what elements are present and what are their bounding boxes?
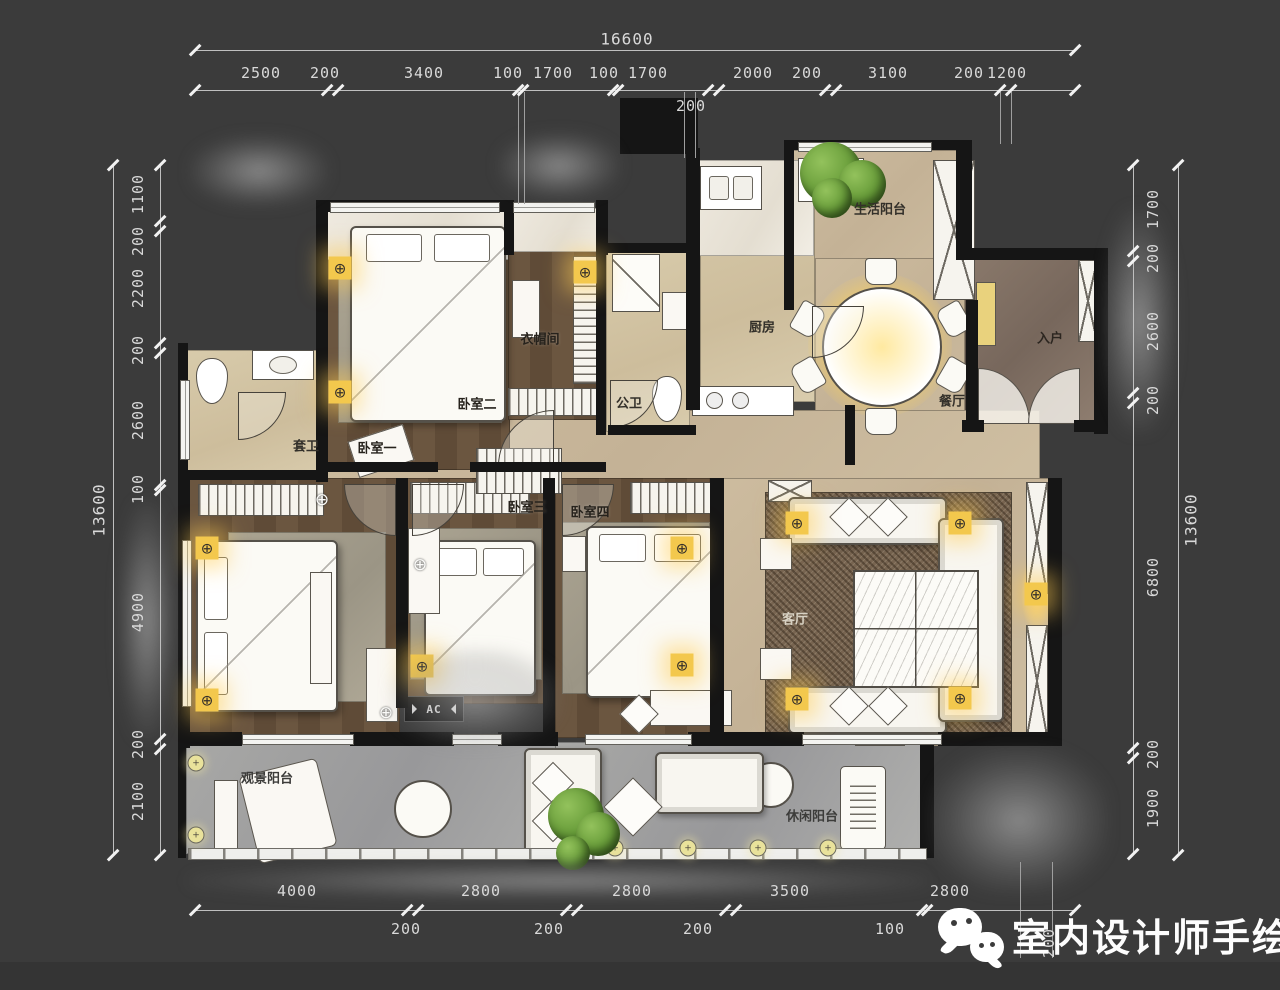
dining-chair <box>865 408 897 435</box>
wall-segment <box>966 300 978 428</box>
light-shadow <box>190 136 328 206</box>
label-entry: 入户 <box>1037 328 1063 347</box>
dim: 1700 <box>1144 189 1162 229</box>
dim-right-total: 13600 <box>1182 493 1201 546</box>
dim: 1700 <box>628 64 668 82</box>
x-cabinet <box>1026 625 1048 737</box>
wall-segment <box>608 425 696 435</box>
ceiling-light-icon: ⊕ <box>1025 583 1048 606</box>
wall-segment <box>686 148 700 410</box>
wall-segment <box>1094 252 1108 434</box>
dim: 100 <box>875 920 905 938</box>
ceiling-light-icon: ⊕ <box>411 655 434 678</box>
wall-segment <box>316 462 438 472</box>
ac-platform-box: AC <box>404 696 464 722</box>
floor-light-icon: + <box>750 840 767 857</box>
wall-segment <box>712 732 804 746</box>
bedroom3-bed <box>424 540 536 696</box>
wall-segment <box>596 250 606 435</box>
wall-segment <box>784 140 794 310</box>
window <box>330 202 500 213</box>
wall-segment <box>178 742 186 858</box>
balcony-planter <box>214 780 238 850</box>
dim: 2100 <box>129 781 147 821</box>
bedroom4-wardrobe <box>630 482 718 514</box>
extension-line <box>1000 92 1001 144</box>
dim: 200 <box>1144 739 1162 769</box>
light-shadow <box>930 748 1108 893</box>
ceiling-light-icon: ⊕ <box>949 687 972 710</box>
bedroom4-nightstand <box>562 536 586 572</box>
living-sofa-bottom <box>788 686 947 734</box>
plant-icon <box>812 178 852 218</box>
treadmill <box>840 766 886 850</box>
dim: 2200 <box>129 268 147 308</box>
label-kitchen: 厨房 <box>749 317 775 336</box>
dim: 200 <box>391 920 421 938</box>
wall-segment <box>350 732 398 746</box>
extension-line <box>518 92 519 204</box>
dim: 2000 <box>733 64 773 82</box>
ceiling-light-icon: ⊕ <box>329 381 352 404</box>
balcony-round-table <box>394 780 452 838</box>
floor-light-icon: + <box>188 755 205 772</box>
wechat-icon <box>938 900 1004 968</box>
wall-segment <box>962 248 1108 260</box>
label-bedroom1: 卧室一 <box>357 438 396 457</box>
label-leisure-balcony: 休闲阳台 <box>786 806 838 825</box>
wall-segment <box>920 742 934 858</box>
dim: 2800 <box>612 882 652 900</box>
dim: 4000 <box>277 882 317 900</box>
window <box>585 734 692 745</box>
dim: 200 <box>676 97 706 115</box>
dim: 3500 <box>770 882 810 900</box>
extension-line <box>1011 92 1012 144</box>
ceiling-light-icon: ⊕ <box>786 512 809 535</box>
stove-burner-icon <box>732 392 749 409</box>
label-dining: 餐厅 <box>939 391 965 410</box>
bedroom4-bed <box>586 526 714 698</box>
kitchen-sink <box>700 166 762 210</box>
dim: 200 <box>954 64 984 82</box>
plant-icon <box>556 836 590 870</box>
watermark-text: 室内设计师手绘 <box>1012 907 1280 962</box>
shower-stall <box>612 254 660 312</box>
dim: 200 <box>534 920 564 938</box>
bedroom1-foot-bench <box>310 572 332 684</box>
bath-vanity <box>662 292 688 330</box>
ceiling-light-icon: ⊕ <box>671 537 694 560</box>
cloakroom-rack <box>508 388 600 416</box>
ceiling-light-icon: ⊕ <box>329 257 352 280</box>
window <box>802 734 942 745</box>
wall-segment <box>596 243 700 253</box>
dim-line-left <box>160 165 161 855</box>
dim: 200 <box>310 64 340 82</box>
wall-segment <box>710 478 724 746</box>
dim-top-total: 16600 <box>600 30 653 49</box>
floor-light-icon: + <box>680 840 697 857</box>
dim: 2800 <box>461 882 501 900</box>
living-coffee-table <box>853 570 979 688</box>
downlight-icon: ⊕ <box>315 490 329 510</box>
wall-segment <box>1048 478 1062 746</box>
dim: 1700 <box>533 64 573 82</box>
ceiling-light-icon: ⊕ <box>574 261 597 284</box>
dim: 100 <box>589 64 619 82</box>
ceiling-light-icon: ⊕ <box>196 689 219 712</box>
living-side-table <box>760 538 792 570</box>
label-bedroom3: 卧室三 <box>507 497 546 516</box>
window <box>182 540 192 707</box>
wall-segment <box>184 732 242 746</box>
ceiling-light-icon: ⊕ <box>671 654 694 677</box>
ac-label: AC <box>426 703 441 716</box>
dim: 1200 <box>987 64 1027 82</box>
label-bedroom4: 卧室四 <box>570 502 609 521</box>
living-sofa-top <box>788 497 947 545</box>
dim: 2600 <box>129 400 147 440</box>
dim-line-right <box>1133 165 1134 855</box>
floor-light-icon: + <box>820 840 837 857</box>
dim: 6800 <box>1144 557 1162 597</box>
dim: 200 <box>1144 243 1162 273</box>
window <box>180 380 190 460</box>
label-ensuite-bath: 套卫 <box>293 436 319 455</box>
dim: 3400 <box>404 64 444 82</box>
dim: 100 <box>129 474 147 504</box>
light-shadow <box>498 133 620 199</box>
label-living-room: 客厅 <box>782 609 808 628</box>
downlight-icon: ⊕ <box>379 703 393 723</box>
leisure-lounge <box>655 752 764 814</box>
dim: 2800 <box>930 882 970 900</box>
window <box>452 734 502 745</box>
dining-sideboard <box>976 282 996 346</box>
downlight-icon: ⊕ <box>413 555 427 575</box>
watermark: 室内设计师手绘 <box>938 900 1280 968</box>
living-side-table <box>760 648 792 680</box>
dim: 2600 <box>1144 311 1162 351</box>
dim: 2500 <box>241 64 281 82</box>
dim-line-left-total <box>113 165 114 855</box>
wall-segment <box>1074 420 1108 432</box>
wall-segment <box>845 405 855 465</box>
cloakroom-window-zone <box>508 208 603 252</box>
dim: 200 <box>129 729 147 759</box>
dim: 200 <box>1144 385 1162 415</box>
ceiling-light-icon: ⊕ <box>949 512 972 535</box>
dim: 200 <box>683 920 713 938</box>
floor-light-icon: + <box>188 827 205 844</box>
dim-line-top-total <box>195 50 1075 51</box>
wall-segment <box>396 732 454 746</box>
wall-segment <box>470 462 606 472</box>
label-view-balcony: 观景阳台 <box>241 768 293 787</box>
wall-segment <box>316 212 328 387</box>
dim-left-total: 13600 <box>90 483 109 536</box>
label-public-bath: 公卫 <box>616 393 642 412</box>
dim-line-right-total <box>1178 165 1179 855</box>
dim: 100 <box>493 64 523 82</box>
dim: 4900 <box>129 592 147 632</box>
ceiling-light-icon: ⊕ <box>786 688 809 711</box>
light-shadow <box>1102 208 1176 433</box>
window <box>513 202 595 213</box>
stove-burner-icon <box>706 392 723 409</box>
wall-segment <box>956 140 972 260</box>
wall-segment <box>938 732 1052 746</box>
extension-line <box>524 92 525 204</box>
light-shadow <box>118 500 176 740</box>
x-cabinet <box>1026 482 1048 594</box>
balcony-balustrade <box>188 848 604 860</box>
ensuite-vanity <box>252 350 314 380</box>
dim: 1100 <box>129 174 147 214</box>
label-cloakroom: 衣帽间 <box>520 329 559 348</box>
label-bedroom2: 卧室二 <box>457 394 496 413</box>
wall-segment <box>396 478 408 708</box>
dim: 200 <box>792 64 822 82</box>
label-living-balcony: 生活阳台 <box>854 199 906 218</box>
wall-segment <box>184 470 320 480</box>
dim: 200 <box>129 226 147 256</box>
window <box>242 734 354 745</box>
ceiling-light-icon: ⊕ <box>196 537 219 560</box>
dim: 3100 <box>868 64 908 82</box>
wall-segment <box>545 700 555 746</box>
dim: 200 <box>129 335 147 365</box>
dining-chair <box>865 258 897 285</box>
bedroom1-wardrobe <box>198 484 324 516</box>
dim: 1900 <box>1144 788 1162 828</box>
floor-plan-canvas: AC 生活阳台 厨房 餐厅 入户 衣帽间 公卫 套卫 卧室一 卧室二 卧室三 卧… <box>0 0 1280 990</box>
